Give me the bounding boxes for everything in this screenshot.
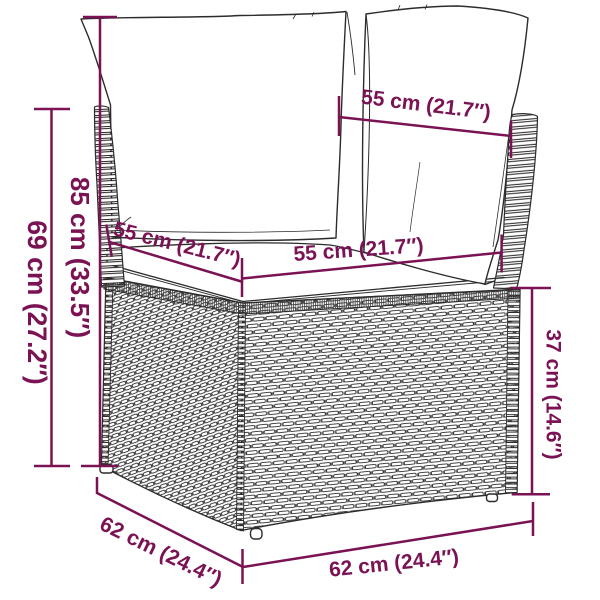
svg-text:69 cm (27.2″): 69 cm (27.2″) <box>22 220 52 384</box>
svg-text:85 cm (33.5″): 85 cm (33.5″) <box>65 177 95 338</box>
svg-text:37 cm (14.6″): 37 cm (14.6″) <box>542 329 565 459</box>
